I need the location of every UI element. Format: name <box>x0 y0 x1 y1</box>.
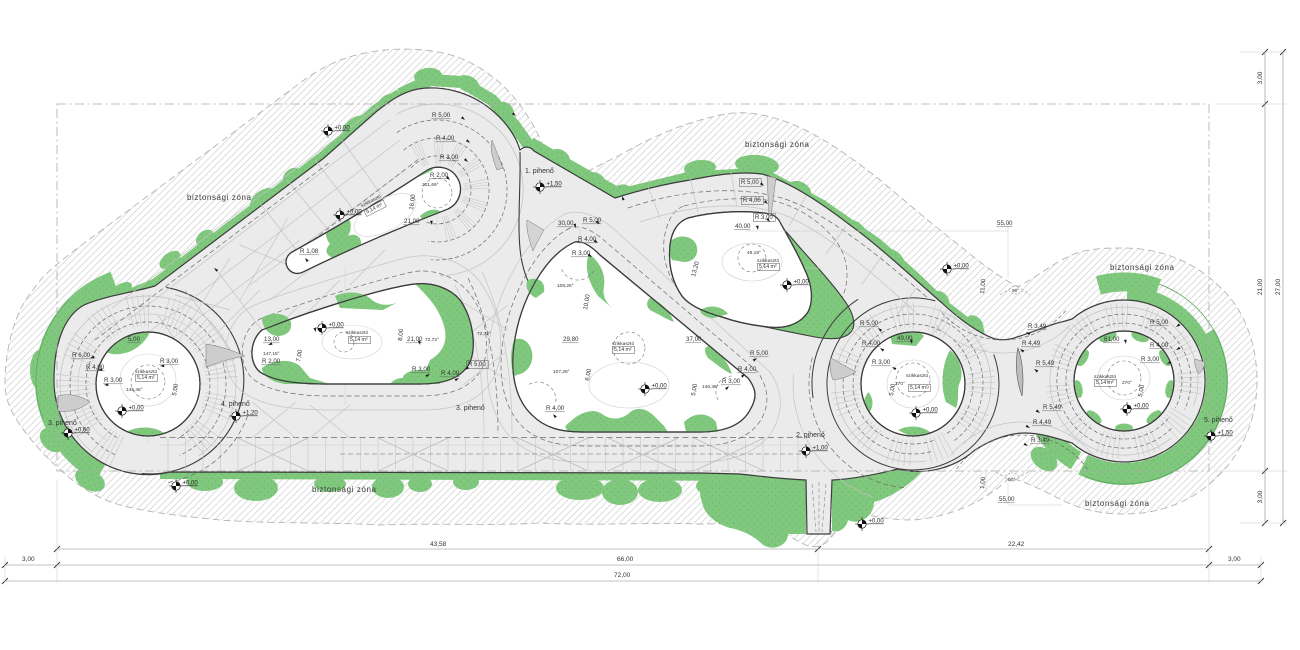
svg-text:55,00: 55,00 <box>999 496 1015 503</box>
svg-text:3. pihenő: 3. pihenő <box>456 405 485 412</box>
svg-text:+1,50: +1,50 <box>547 182 563 188</box>
svg-text:R 4,00: R 4,00 <box>578 236 597 243</box>
svg-text:270°: 270° <box>1122 380 1132 386</box>
svg-text:R 4,00: R 4,00 <box>743 198 761 204</box>
svg-text:+1,20: +1,20 <box>243 411 259 417</box>
svg-text:+0,00: +0,00 <box>183 481 199 487</box>
svg-text:R 5,49: R 5,49 <box>1043 404 1062 411</box>
svg-text:+0,00: +0,00 <box>923 408 939 414</box>
svg-text:201,69°: 201,69° <box>422 182 439 188</box>
svg-text:R 5,00: R 5,00 <box>741 180 759 186</box>
svg-text:5,14 m²: 5,14 m² <box>759 264 777 270</box>
svg-text:R 2,00: R 2,00 <box>262 358 281 365</box>
svg-text:+1,50: +1,50 <box>1218 431 1234 437</box>
svg-text:147,18°: 147,18° <box>263 351 280 357</box>
svg-text:5,14 m²: 5,14 m² <box>614 347 632 353</box>
svg-text:55,00: 55,00 <box>997 220 1013 227</box>
svg-text:R 4,00: R 4,00 <box>862 340 881 347</box>
svg-text:90°: 90° <box>1012 288 1019 294</box>
svg-text:R 5,49: R 5,49 <box>1036 360 1055 367</box>
svg-text:72,00: 72,00 <box>614 572 631 579</box>
svg-text:107,28°: 107,28° <box>553 369 570 375</box>
svg-text:R 2,00: R 2,00 <box>430 172 449 179</box>
svg-text:5,00: 5,00 <box>128 336 141 343</box>
svg-text:+0,00: +0,00 <box>794 280 810 286</box>
svg-text:R 4,00: R 4,00 <box>441 370 460 377</box>
svg-text:+0,60: +0,60 <box>75 428 91 434</box>
svg-text:+0,00: +0,00 <box>335 126 351 132</box>
svg-text:R 3,00: R 3,00 <box>160 358 179 365</box>
svg-text:biztonsági zóna: biztonsági zóna <box>1110 263 1175 272</box>
svg-text:22,42: 22,42 <box>1008 541 1025 548</box>
svg-text:szikkasztó: szikkasztó <box>906 373 928 379</box>
svg-text:biztonsági zóna: biztonsági zóna <box>187 193 252 202</box>
svg-text:145,45°: 145,45° <box>126 387 143 393</box>
svg-text:108,26°: 108,26° <box>557 283 574 289</box>
svg-text:5,14 m²: 5,14 m² <box>350 337 368 343</box>
svg-text:5,14 m²: 5,14 m² <box>137 375 155 381</box>
svg-text:13,00: 13,00 <box>264 336 280 343</box>
svg-text:R 3,00: R 3,00 <box>722 378 741 385</box>
svg-text:+0,00: +0,00 <box>347 210 363 216</box>
svg-text:szikkasztó: szikkasztó <box>346 330 368 336</box>
svg-text:R 3,00: R 3,00 <box>412 366 431 373</box>
svg-text:1. pihenő: 1. pihenő <box>525 168 554 175</box>
svg-text:40,00: 40,00 <box>735 223 751 230</box>
svg-text:11,00: 11,00 <box>979 278 987 294</box>
svg-text:R 3,49: R 3,49 <box>1031 437 1050 444</box>
svg-text:R 5,00: R 5,00 <box>860 320 879 327</box>
svg-text:3,00: 3,00 <box>22 556 35 563</box>
svg-text:R 4,00: R 4,00 <box>738 366 757 373</box>
svg-text:27,00: 27,00 <box>1275 278 1282 295</box>
svg-text:R 5,00: R 5,00 <box>1150 319 1169 326</box>
svg-text:90°: 90° <box>1008 477 1015 483</box>
svg-text:R 4,49: R 4,49 <box>1022 340 1041 347</box>
svg-text:+0,00: +0,00 <box>954 264 970 270</box>
svg-text:66,00: 66,00 <box>617 556 634 563</box>
svg-text:30,00: 30,00 <box>558 220 574 227</box>
svg-text:R 1,08: R 1,08 <box>300 248 319 255</box>
svg-text:R 3,49: R 3,49 <box>1028 323 1047 330</box>
svg-text:R 4,00: R 4,00 <box>546 405 565 412</box>
svg-text:+0,00: +0,00 <box>652 384 668 390</box>
svg-text:+0,00: +0,00 <box>1134 404 1150 410</box>
svg-text:+0,00: +0,00 <box>869 519 885 525</box>
svg-text:4. pihenő: 4. pihenő <box>221 401 250 408</box>
svg-text:21,00: 21,00 <box>1257 278 1264 295</box>
svg-text:R 6,00: R 6,00 <box>72 352 91 359</box>
svg-text:146,46°: 146,46° <box>702 384 719 390</box>
svg-text:R 5,00: R 5,00 <box>432 112 451 119</box>
svg-text:5. pihenő: 5. pihenő <box>1204 417 1233 424</box>
svg-text:3. pihenő: 3. pihenő <box>48 420 77 427</box>
svg-text:R 5,00: R 5,00 <box>468 362 486 368</box>
svg-text:5,14 m²: 5,14 m² <box>1096 380 1114 386</box>
svg-text:72,72°: 72,72° <box>477 331 491 337</box>
svg-text:61,00: 61,00 <box>1104 336 1120 343</box>
svg-text:R 5,00: R 5,00 <box>750 350 769 357</box>
svg-text:8,00: 8,00 <box>397 328 405 341</box>
svg-text:3,00: 3,00 <box>1228 556 1241 563</box>
svg-text:biztonsági zóna: biztonsági zóna <box>312 485 377 494</box>
svg-text:3,00: 3,00 <box>1257 71 1264 84</box>
svg-text:+0,00: +0,00 <box>129 406 145 412</box>
svg-text:29,80: 29,80 <box>563 336 579 343</box>
svg-text:3,00: 3,00 <box>1257 490 1264 503</box>
svg-text:biztonsági zóna: biztonsági zóna <box>1085 499 1150 508</box>
svg-text:R 3,00: R 3,00 <box>755 215 773 221</box>
svg-text:R 3,00: R 3,00 <box>440 154 459 161</box>
svg-text:R 3,00: R 3,00 <box>104 377 123 384</box>
svg-text:R 3,00: R 3,00 <box>1141 356 1160 363</box>
svg-text:+1,00: +1,00 <box>813 446 829 452</box>
svg-text:R 4,00: R 4,00 <box>1150 342 1169 349</box>
svg-text:2. pihenő: 2. pihenő <box>796 432 825 439</box>
svg-text:43,58: 43,58 <box>430 541 447 548</box>
svg-text:37,00: 37,00 <box>686 336 702 343</box>
svg-text:72,72°: 72,72° <box>425 337 439 343</box>
svg-text:+0,00: +0,00 <box>329 323 345 329</box>
svg-text:R 3,00: R 3,00 <box>572 250 591 257</box>
svg-text:21,00: 21,00 <box>407 336 423 343</box>
svg-text:R 3,00: R 3,00 <box>872 359 891 366</box>
svg-text:1,00: 1,00 <box>979 476 987 489</box>
svg-text:49,18°: 49,18° <box>747 250 761 256</box>
svg-text:5,14 m²: 5,14 m² <box>910 385 928 391</box>
svg-text:21,00: 21,00 <box>404 218 420 225</box>
svg-text:R 4,00: R 4,00 <box>436 135 455 142</box>
svg-text:R 4,49: R 4,49 <box>1033 419 1052 426</box>
svg-text:biztonsági zóna: biztonsági zóna <box>745 140 810 149</box>
